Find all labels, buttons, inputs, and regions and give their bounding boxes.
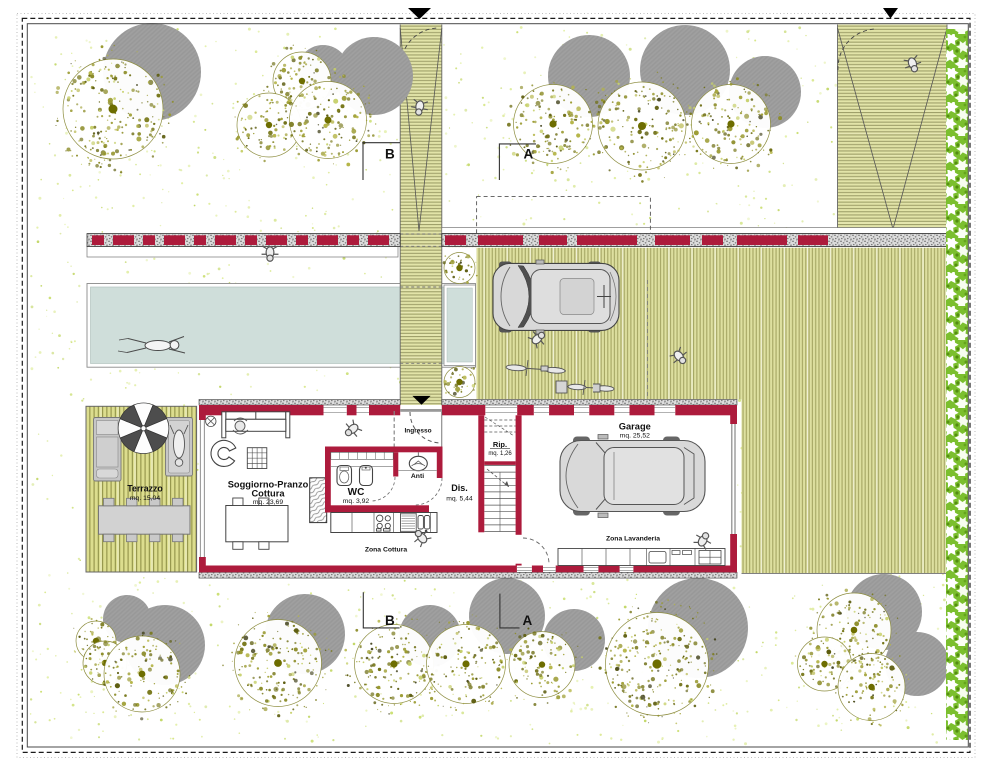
svg-text:mq. 15,04: mq. 15,04 [130,495,160,502]
svg-text:B: B [385,613,395,628]
svg-text:Dis.: Dis. [451,483,468,493]
svg-text:A: A [523,613,533,628]
svg-text:Terrazzo: Terrazzo [127,484,163,494]
svg-text:Zona Cottura: Zona Cottura [365,547,408,554]
svg-text:mq. 23,69: mq. 23,69 [253,499,283,506]
svg-text:WC: WC [348,487,365,498]
svg-text:A: A [524,147,534,162]
svg-text:B: B [385,147,395,162]
svg-text:mq. 1,26: mq. 1,26 [488,451,512,457]
svg-text:Garage: Garage [619,422,651,432]
svg-text:Rip.: Rip. [493,440,507,449]
svg-text:mq. 25,52: mq. 25,52 [620,433,650,440]
svg-text:mq. 3,92: mq. 3,92 [343,498,370,505]
svg-text:Ingresso: Ingresso [404,428,431,435]
svg-text:Zona Lavanderia: Zona Lavanderia [606,536,660,543]
svg-text:mq. 5,44: mq. 5,44 [446,496,473,503]
svg-text:Anti: Anti [411,473,424,480]
svg-text:Cottura: Cottura [251,489,285,499]
